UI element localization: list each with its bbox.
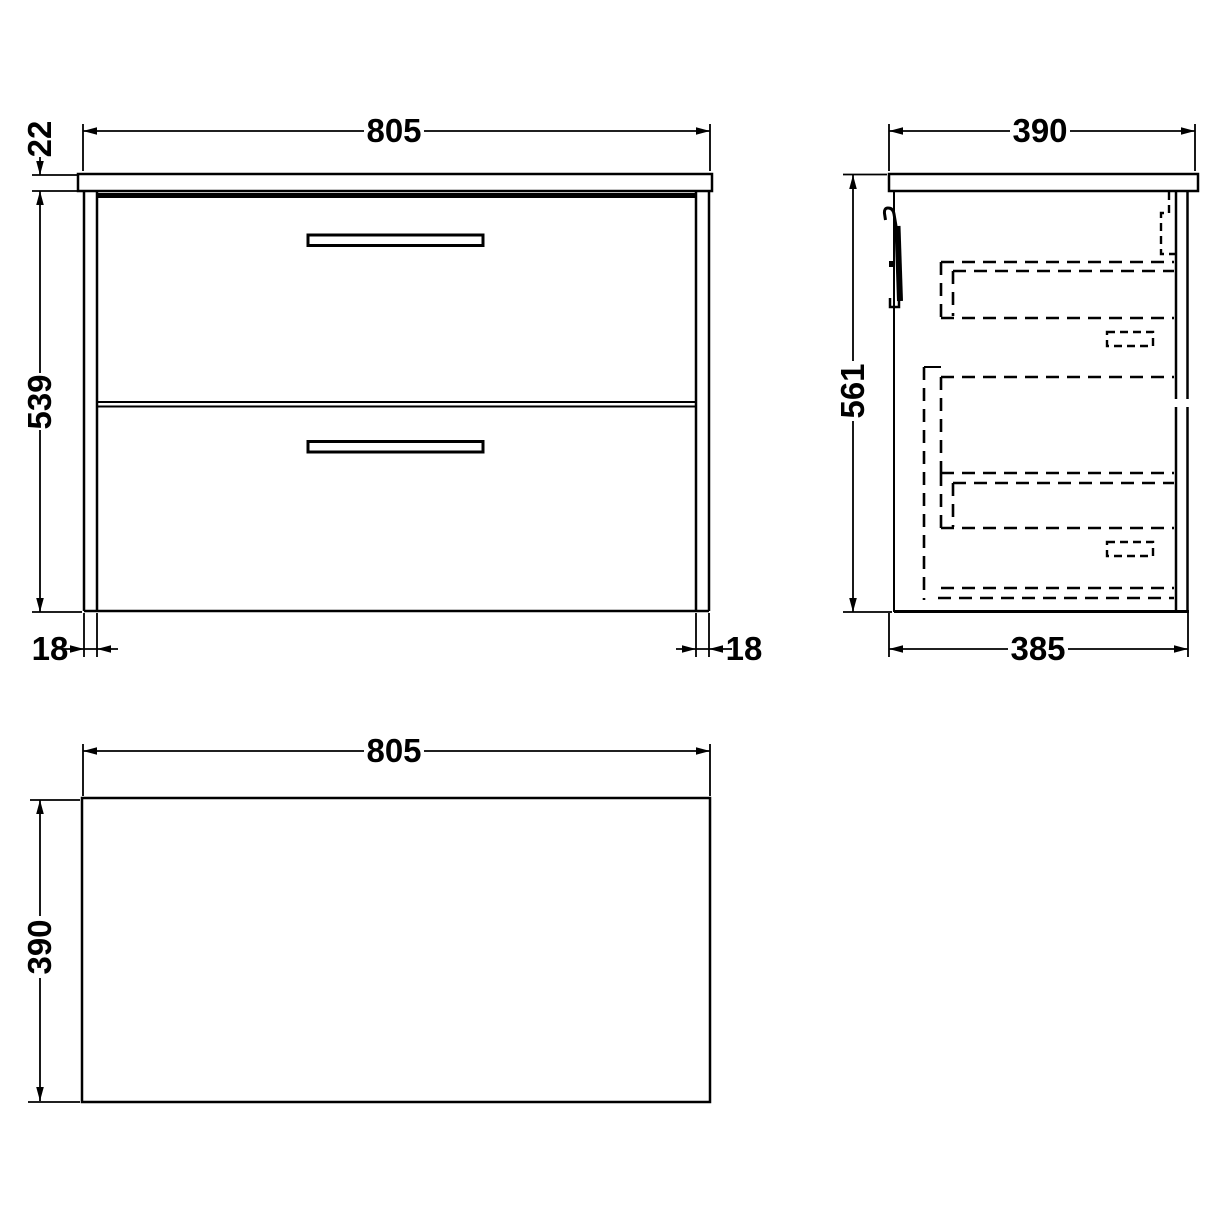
dim-front-width-label: 805 [366, 112, 421, 149]
dim-front-left-panel-label: 18 [32, 630, 69, 667]
front-bottom-drawer-handle [308, 442, 483, 453]
dim-plan-width-label: 805 [366, 732, 421, 769]
dim-plan-depth-label: 390 [21, 919, 58, 974]
technical-drawing-page: 805 22 539 18 [0, 0, 1224, 1224]
dim-front-worktop-thickness-label: 22 [21, 121, 58, 158]
dim-front-cabinet-height-label: 539 [21, 374, 58, 429]
vanity-unit-drawing: 805 22 539 18 [0, 0, 1224, 1224]
dim-side-worktop-depth-label: 390 [1012, 112, 1067, 149]
dim-side-overall-height-label: 561 [834, 363, 871, 418]
dim-front-right-panel-label: 18 [726, 630, 763, 667]
front-top-drawer-handle [308, 235, 483, 246]
dim-side-cabinet-depth-label: 385 [1010, 630, 1065, 667]
